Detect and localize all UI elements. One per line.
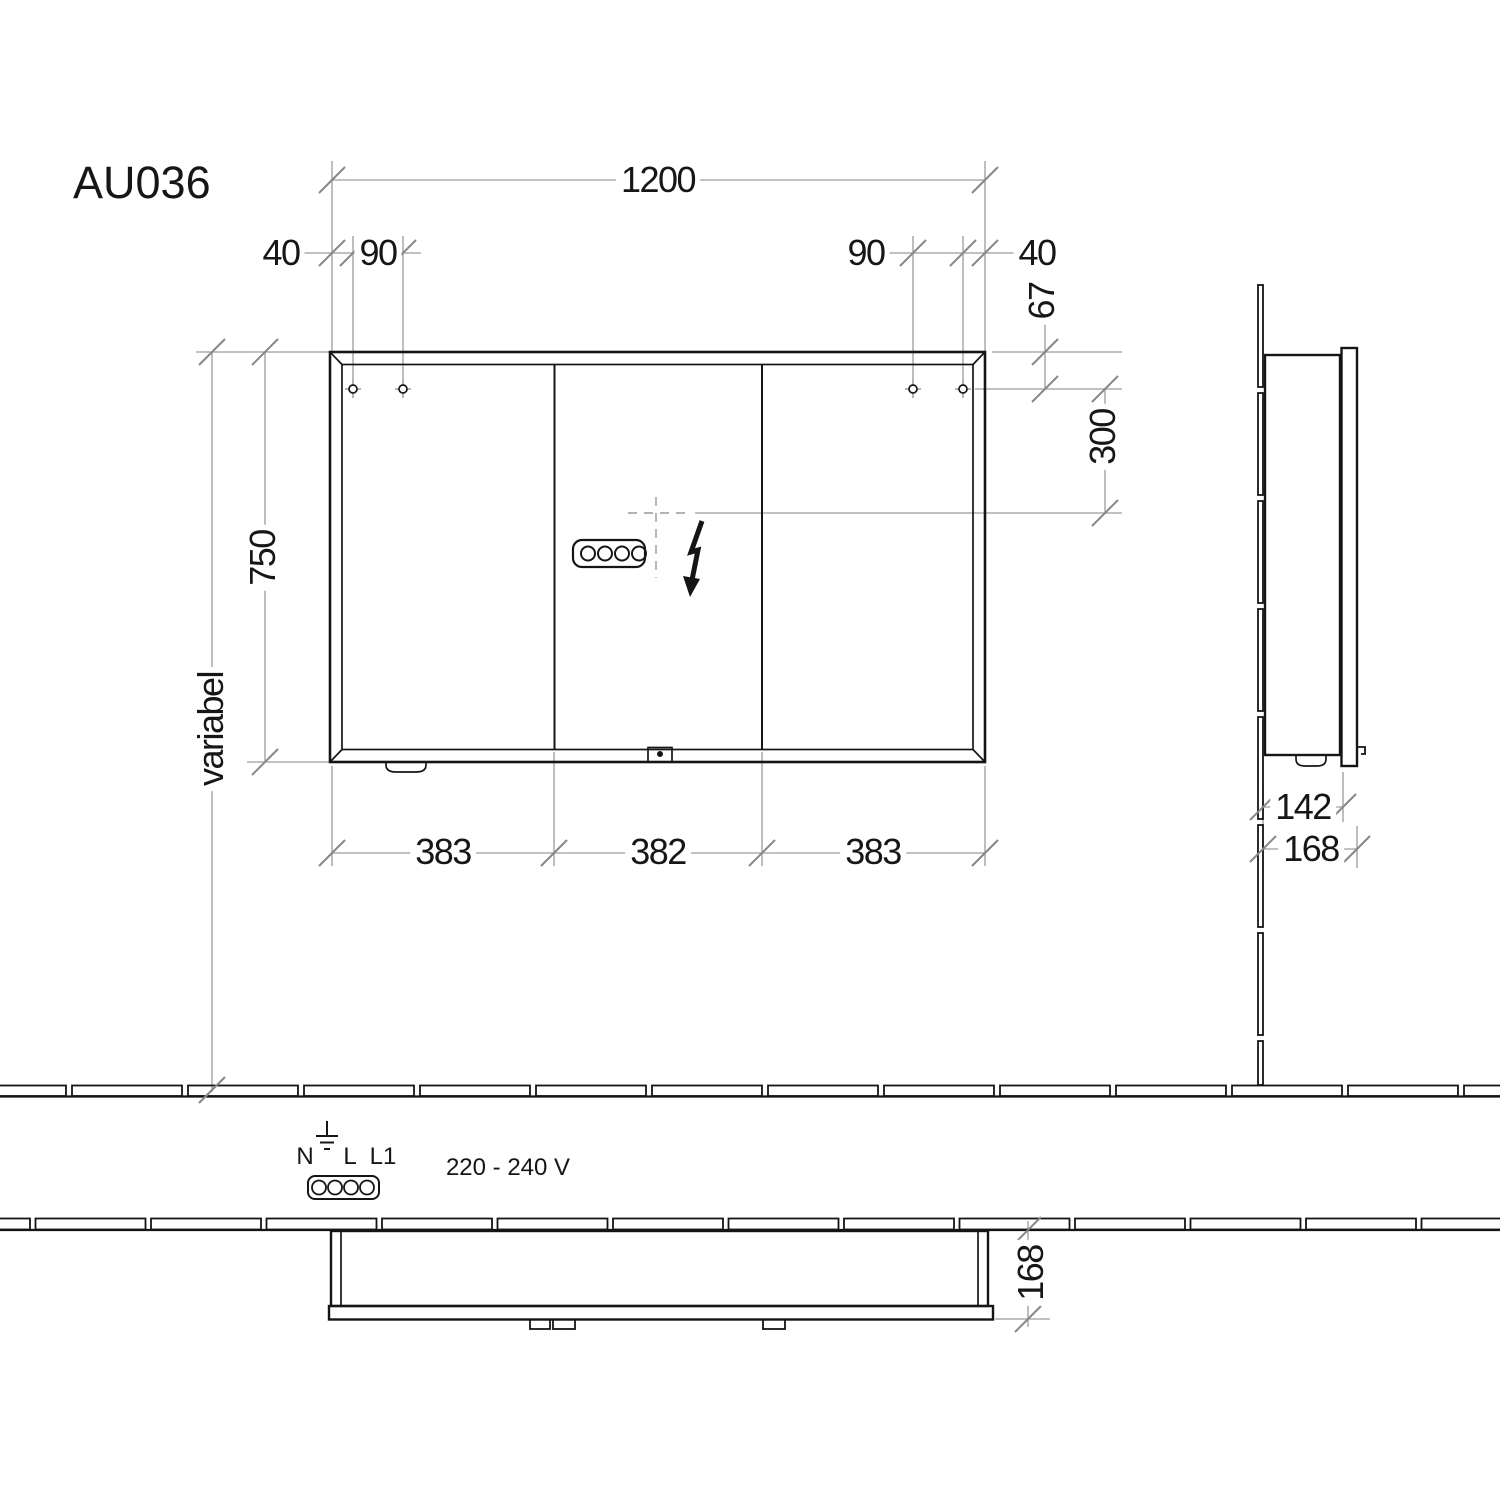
dim-total-depth-side-label: 168 (1278, 831, 1344, 867)
dim-hole-edge-left-label: 40 (257, 235, 304, 271)
mounting-hole-icon (905, 380, 921, 398)
dim-hole-edge-right-label: 40 (1013, 235, 1060, 271)
center-mark-icon (628, 497, 687, 578)
plan-view (329, 1231, 993, 1329)
side-carcass (1265, 355, 1340, 755)
plan-carcass (331, 1231, 988, 1306)
dim-door-width-1-label: 383 (410, 834, 476, 870)
mounting-hole-icon (955, 380, 971, 398)
product-code: AU036 (73, 160, 211, 205)
wall-band-lower (0, 1219, 1500, 1230)
side-door-panel (1342, 348, 1358, 766)
dim-total-depth-plan-label: 168 (1013, 1240, 1049, 1306)
underlight-side-icon (1296, 755, 1326, 766)
dim-variable-height-label: variabel (193, 667, 229, 791)
mounting-hole-icon (345, 380, 361, 398)
dim-hole-spacing-left-label: 90 (354, 235, 401, 271)
earth-ground-icon (316, 1121, 338, 1149)
power-connector-icon (573, 540, 646, 567)
plan-fitting (763, 1320, 785, 1330)
front-view (330, 352, 985, 772)
wall-band-upper (0, 1086, 1500, 1097)
plan-fitting (530, 1320, 550, 1330)
dim-body-depth-label: 142 (1270, 789, 1336, 825)
dim-hole-top-offset-label: 67 (1024, 277, 1060, 324)
lightning-bolt-icon (683, 521, 702, 597)
voltage-label: 220 - 240 V (443, 1156, 573, 1180)
side-view (1258, 285, 1365, 1085)
dim-hole-spacing-right-label: 90 (842, 235, 889, 271)
terminal-l1-label: L1 (367, 1145, 400, 1169)
dim-outlet-drop-label: 300 (1085, 404, 1121, 470)
underlight-icon (386, 763, 426, 772)
wall-sections (0, 1086, 1500, 1231)
mounting-hole-icon (395, 380, 411, 398)
plan-fitting (553, 1320, 575, 1330)
wall-section-side (1258, 285, 1263, 1085)
mounting-holes (345, 380, 971, 398)
terminal-l-label: L (340, 1145, 359, 1169)
technical-drawing-cabinet-au036: AU036 1200 40 90 90 40 67 300 750 variab… (0, 0, 1500, 1500)
dim-door-width-2-label: 382 (625, 834, 691, 870)
terminal-n-label: N (293, 1145, 316, 1169)
dim-height-label: 750 (245, 525, 281, 591)
plan-door-front (329, 1306, 993, 1320)
dim-door-width-3-label: 383 (840, 834, 906, 870)
terminal-connector-icon (308, 1176, 379, 1199)
dim-width-label: 1200 (616, 162, 700, 198)
